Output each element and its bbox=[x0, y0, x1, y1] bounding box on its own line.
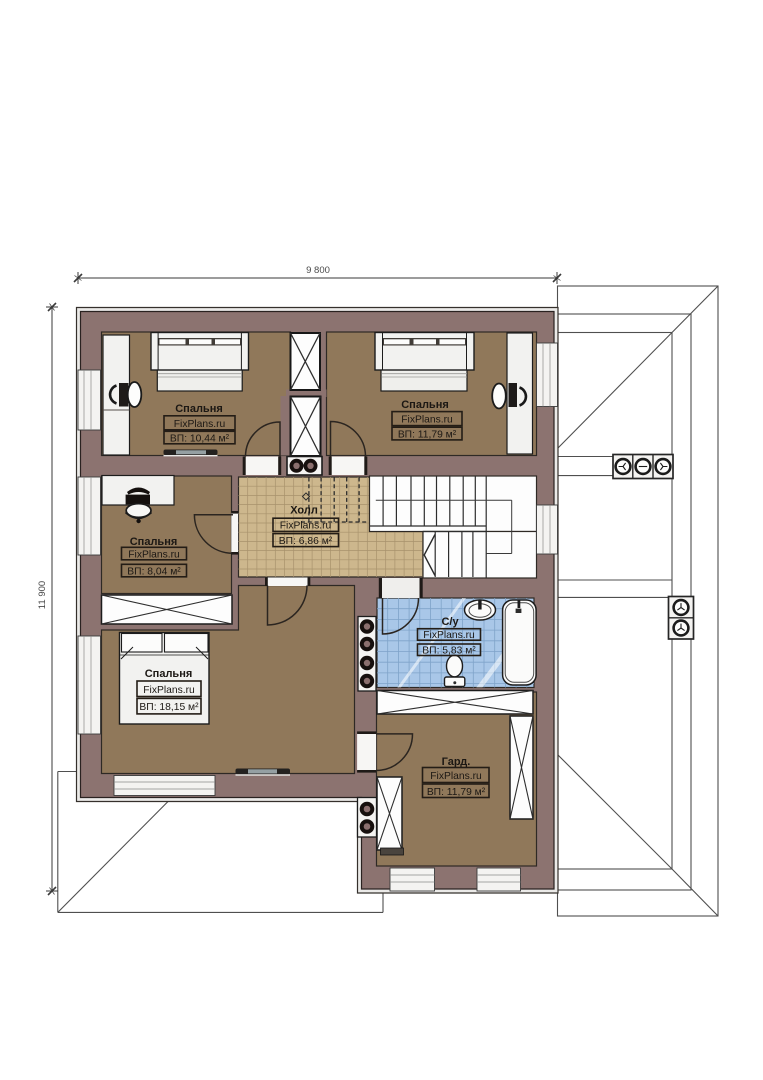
svg-text:ВП: 10,44 м²: ВП: 10,44 м² bbox=[170, 433, 230, 444]
svg-text:ВП: 11,79 м²: ВП: 11,79 м² bbox=[427, 787, 486, 798]
svg-text:FixPlans.ru: FixPlans.ru bbox=[430, 771, 482, 782]
svg-text:FixPlans.ru: FixPlans.ru bbox=[401, 415, 453, 426]
svg-text:9 800: 9 800 bbox=[306, 265, 330, 276]
svg-text:Спальня: Спальня bbox=[145, 668, 193, 680]
svg-text:FixPlans.ru: FixPlans.ru bbox=[280, 521, 332, 532]
svg-text:11 900: 11 900 bbox=[37, 581, 48, 609]
svg-text:Спальня: Спальня bbox=[175, 403, 223, 415]
svg-text:FixPlans.ru: FixPlans.ru bbox=[143, 685, 195, 696]
svg-text:ВП: 8,04 м²: ВП: 8,04 м² bbox=[127, 566, 181, 577]
svg-text:ВП: 6,86 м²: ВП: 6,86 м² bbox=[279, 536, 333, 547]
svg-text:ВП: 11,79 м²: ВП: 11,79 м² bbox=[398, 429, 457, 440]
svg-text:ВП: 5,83 м²: ВП: 5,83 м² bbox=[422, 646, 476, 657]
svg-text:FixPlans.ru: FixPlans.ru bbox=[128, 549, 180, 560]
svg-text:Холл: Холл bbox=[290, 505, 318, 517]
svg-text:Спальня: Спальня bbox=[401, 399, 449, 411]
svg-text:FixPlans.ru: FixPlans.ru bbox=[174, 419, 226, 430]
svg-text:FixPlans.ru: FixPlans.ru bbox=[423, 630, 475, 641]
svg-text:ВП: 18,15 м²: ВП: 18,15 м² bbox=[139, 702, 199, 713]
svg-text:Спальня: Спальня bbox=[130, 536, 178, 548]
svg-text:Гард.: Гард. bbox=[442, 756, 471, 768]
svg-text:С/у: С/у bbox=[441, 616, 459, 628]
